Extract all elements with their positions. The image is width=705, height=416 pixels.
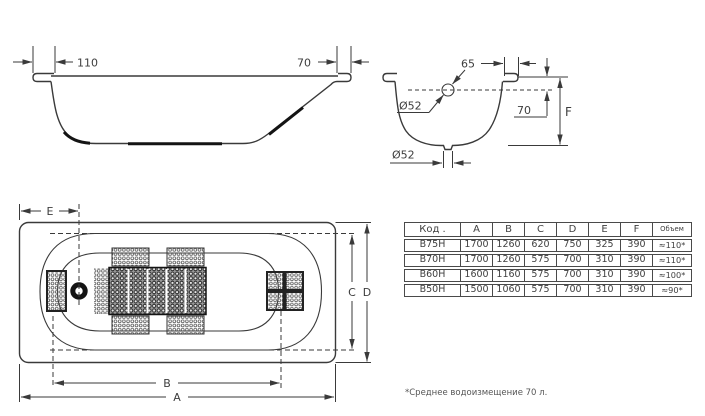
col-header-a: A (461, 222, 493, 237)
antislip-pad (112, 248, 149, 266)
table-cell: 390 (621, 284, 653, 297)
table-row: В50Н 1500 1060 575 700 310 390 ≈90* (404, 284, 692, 297)
col-header-c: C (525, 222, 557, 237)
col-header-code: Код . (404, 222, 461, 237)
table-cell: 575 (525, 254, 557, 267)
side-support-pad-left (64, 132, 90, 143)
model-code: В60Н (404, 269, 461, 282)
drawing-views: 110 70 65 Ø52 (0, 0, 705, 416)
leader-line (429, 95, 444, 113)
volume-cell: ≈90* (653, 284, 692, 297)
overflow-diameter-label: Ø52 (399, 100, 422, 113)
table-cell: 700 (557, 269, 589, 282)
section-rim-lip-right (503, 74, 518, 82)
leader-line (453, 70, 466, 84)
table-cell: 700 (557, 284, 589, 297)
section-tub-profile (395, 82, 503, 150)
footnote: *Среднее водоизмещение 70 л. (405, 388, 547, 398)
table-cell: 1700 (461, 254, 493, 267)
table-cell: 325 (589, 239, 621, 252)
dim-label-110: 110 (77, 57, 98, 70)
table-cell: 575 (525, 284, 557, 297)
table-row: В70Н 1700 1260 575 700 310 390 ≈110* (404, 254, 692, 267)
side-tub-profile (51, 82, 337, 144)
table-cell: 390 (621, 269, 653, 282)
dim-label-a: A (173, 391, 181, 404)
side-view: 110 70 (13, 46, 369, 144)
dim-label-b: B (163, 377, 171, 390)
top-view: E C D B A (20, 204, 372, 404)
table-cell: 310 (589, 254, 621, 267)
table-cell: 1260 (493, 254, 525, 267)
bathtub-technical-drawing: 110 70 65 Ø52 (0, 0, 705, 416)
col-header-e: E (589, 222, 621, 237)
side-rim-lip-left (33, 74, 54, 82)
grip-left (47, 271, 66, 311)
table-cell: 310 (589, 269, 621, 282)
table-row: В75Н 1700 1260 620 750 325 390 ≈110* (404, 239, 692, 252)
table-cell: 575 (525, 269, 557, 282)
antislip-pad (167, 248, 204, 266)
volume-cell: ≈110* (653, 254, 692, 267)
table-row: В60Н 1600 1160 575 700 310 390 ≈100* (404, 269, 692, 282)
volume-cell: ≈100* (653, 269, 692, 282)
antislip-pad (167, 316, 204, 334)
table-cell: 390 (621, 239, 653, 252)
antislip-band-center (109, 268, 206, 315)
antislip-pad (112, 316, 149, 334)
model-code: В50Н (404, 284, 461, 297)
dim-label-e: E (47, 205, 54, 218)
dim-label-c: C (348, 286, 356, 299)
dim-label-65: 65 (461, 58, 475, 71)
table-cell: 700 (557, 254, 589, 267)
table-cell: 1600 (461, 269, 493, 282)
drain-diameter-label: Ø52 (392, 149, 415, 162)
table-cell: 1060 (493, 284, 525, 297)
col-header-d: D (557, 222, 589, 237)
table-cell: 390 (621, 254, 653, 267)
col-header-b: B (493, 222, 525, 237)
col-header-volume: Объем (653, 222, 692, 237)
table-cell: 750 (557, 239, 589, 252)
table-cell: 1260 (493, 239, 525, 252)
cross-section-view: 65 Ø52 70 F Ø52 (383, 57, 572, 168)
dim-label-70-depth: 70 (517, 104, 531, 117)
grip-right-quadrant (267, 272, 284, 290)
grip-right-quadrant (267, 292, 284, 310)
antislip-dots-left (94, 268, 110, 314)
section-rim-lip-left (383, 74, 397, 82)
col-header-f: F (621, 222, 653, 237)
model-code: В70Н (404, 254, 461, 267)
dim-label-70-side: 70 (297, 57, 311, 70)
table-cell: 620 (525, 239, 557, 252)
table-cell: 310 (589, 284, 621, 297)
dimensions-table: Код . A B C D E F Объем В75Н 1700 1260 6… (404, 220, 692, 299)
table-cell: 1700 (461, 239, 493, 252)
side-support-pad-right (269, 108, 303, 135)
volume-cell: ≈110* (653, 239, 692, 252)
grip-right-quadrant (286, 292, 304, 310)
table-header-row: Код . A B C D E F Объем (404, 222, 692, 237)
side-rim-lip-right (337, 74, 351, 82)
table-cell: 1500 (461, 284, 493, 297)
grip-right-quadrant (286, 272, 304, 290)
dim-label-f: F (565, 105, 572, 119)
dim-label-d: D (363, 286, 371, 299)
model-code: В75Н (404, 239, 461, 252)
table-cell: 1160 (493, 269, 525, 282)
